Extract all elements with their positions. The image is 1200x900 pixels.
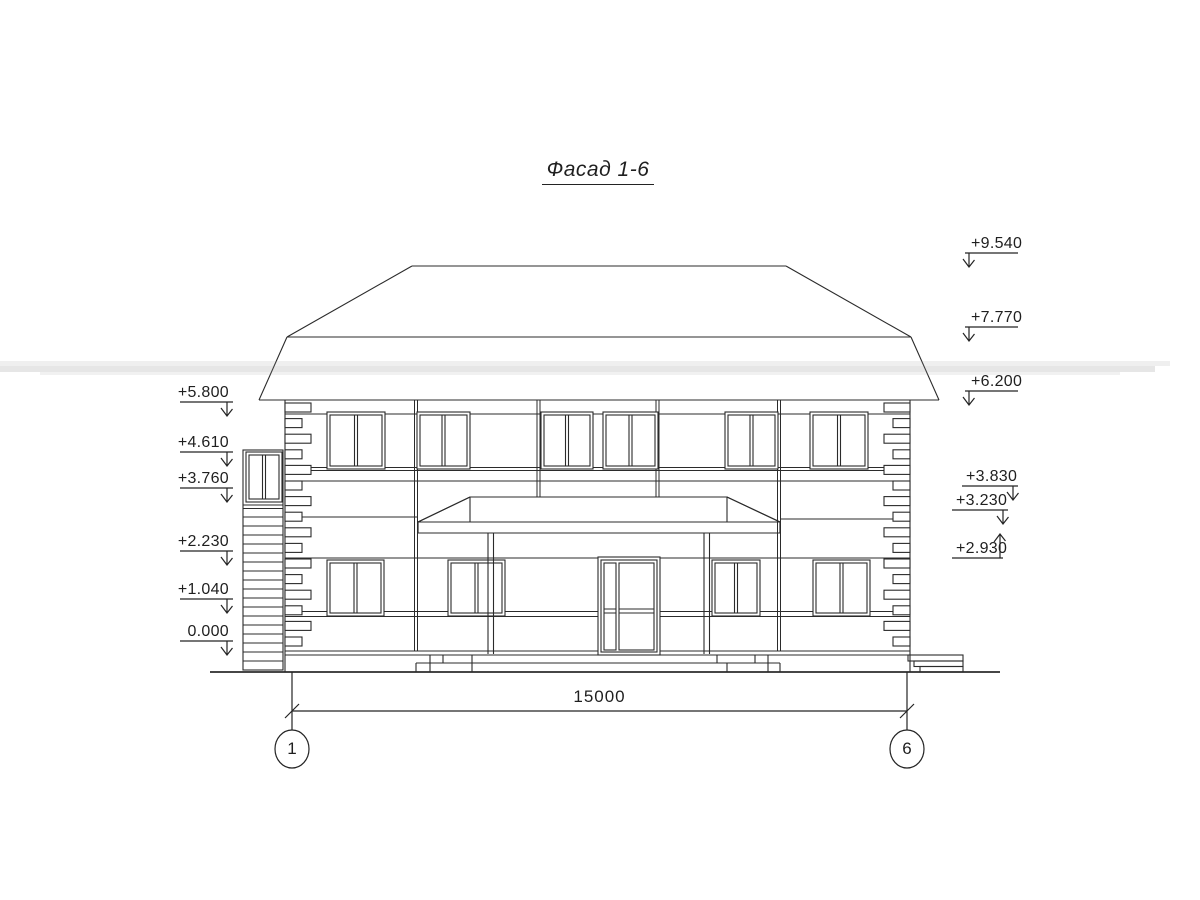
corner-quoins-right xyxy=(884,403,910,646)
elevation-mark xyxy=(180,599,233,613)
elevation-mark xyxy=(963,391,1018,405)
elevation-label: +1.040 xyxy=(149,582,229,598)
window xyxy=(712,560,760,616)
elevation-mark xyxy=(963,327,1018,341)
side-annex xyxy=(243,450,283,670)
entrance-canopy xyxy=(418,497,780,533)
elevation-label: 0.000 xyxy=(149,624,229,640)
elevation-label: +7.770 xyxy=(971,310,1022,326)
window xyxy=(810,412,868,469)
entrance-steps xyxy=(416,655,780,672)
elevation-label: +3.760 xyxy=(149,471,229,487)
elevation-label: +5.800 xyxy=(149,385,229,401)
corner-quoins-left xyxy=(285,403,311,646)
window xyxy=(813,560,870,616)
elevation-label: +2.930 xyxy=(956,541,1007,557)
elevation-label: +9.540 xyxy=(971,236,1022,252)
elevation-mark xyxy=(180,452,233,466)
upper-windows xyxy=(327,412,868,469)
elevation-mark xyxy=(963,253,1018,267)
window xyxy=(541,412,593,469)
window xyxy=(327,560,384,616)
axis-label-6: 6 xyxy=(893,740,921,757)
dimension-label: 15000 xyxy=(549,688,650,705)
elevation-mark xyxy=(180,402,233,416)
roof xyxy=(259,266,939,400)
window xyxy=(448,560,505,616)
elevation-mark xyxy=(180,641,233,655)
window xyxy=(327,412,385,469)
elevation-label: +4.610 xyxy=(149,435,229,451)
elevation-marks-right xyxy=(952,253,1019,558)
elevation-label: +2.230 xyxy=(149,534,229,550)
scanned-drawing-page: Фасад 1-6 +5.800 +4.610 +3.760 +2.230 +1… xyxy=(0,0,1200,900)
side-steps-right xyxy=(908,655,963,672)
elevation-label: +6.200 xyxy=(971,374,1022,390)
entrance-door xyxy=(598,557,660,655)
drawing-title: Фасад 1-6 xyxy=(542,159,654,185)
elevation-mark xyxy=(180,551,233,565)
axis-label-1: 1 xyxy=(278,740,306,757)
window xyxy=(725,412,778,469)
elevation-mark xyxy=(180,488,233,502)
elevation-mark xyxy=(952,510,1009,524)
elevation-label: +3.230 xyxy=(956,493,1007,509)
window xyxy=(417,412,470,469)
elevation-label: +3.830 xyxy=(966,469,1017,485)
window xyxy=(603,412,658,469)
